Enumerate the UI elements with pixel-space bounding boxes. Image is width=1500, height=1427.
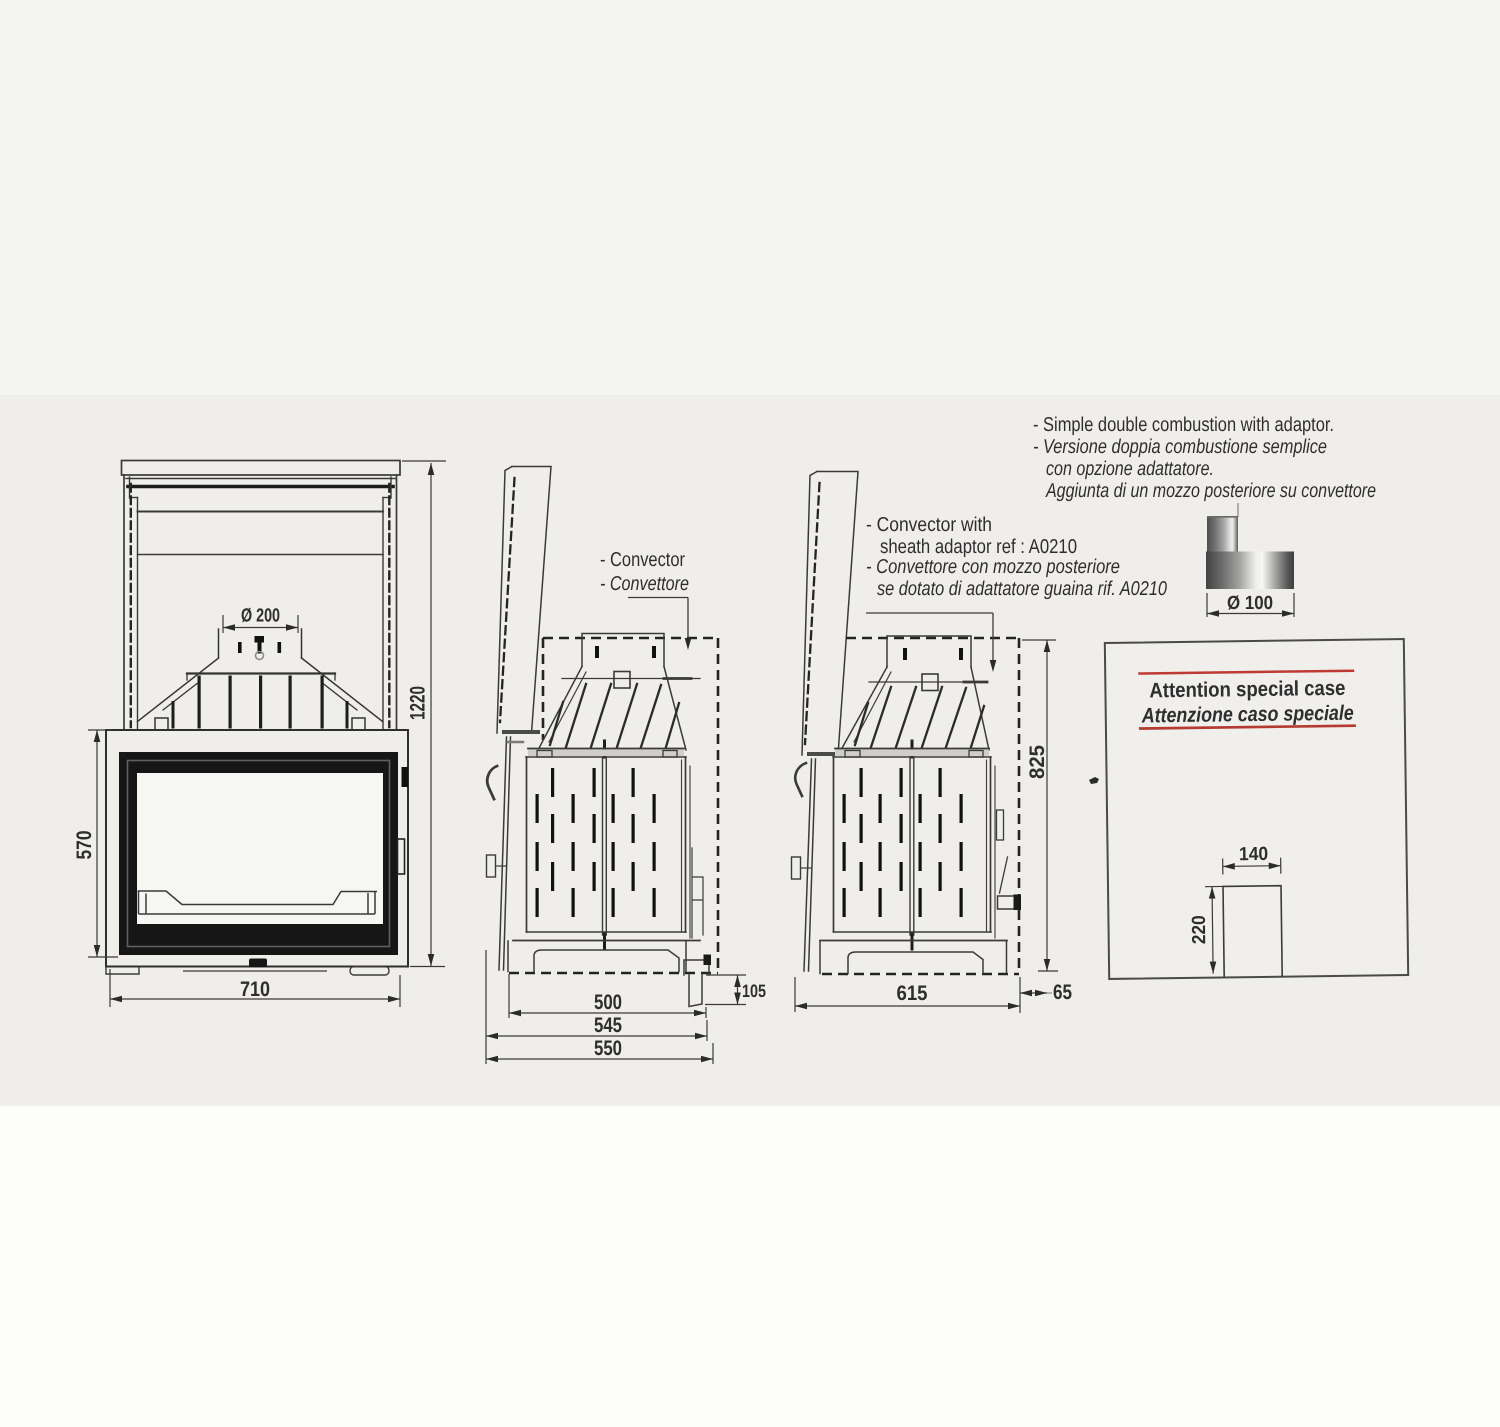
svg-text:550: 550 [594,1037,622,1060]
svg-text:105: 105 [742,981,766,1001]
svg-text:220: 220 [1189,915,1210,944]
svg-text:65: 65 [1053,981,1072,1004]
svg-text:se dotato di adattatore guaina: se dotato di adattatore guaina rif. A021… [877,578,1167,600]
svg-text:500: 500 [594,991,622,1014]
svg-text:- Convettore con mozzo poster: - Convettore con mozzo posteriore [866,556,1120,578]
svg-text:- Versione doppia combustione: - Versione doppia combustione semplice [1033,436,1327,458]
svg-text:Ø 200: Ø 200 [241,606,280,627]
svg-text:- Convector with: - Convector with [866,514,992,536]
svg-text:545: 545 [594,1014,622,1037]
svg-text:615: 615 [897,982,928,1005]
svg-text:140: 140 [1239,844,1268,865]
svg-text:- Convettore: - Convettore [600,573,689,595]
svg-text:Aggiunta di un mozzo posterior: Aggiunta di un mozzo posteriore su conve… [1045,480,1376,502]
svg-text:- Simple double combustion wit: - Simple double combustion with adaptor. [1033,414,1334,436]
svg-text:825: 825 [1026,745,1049,779]
svg-text:570: 570 [73,831,96,860]
svg-text:Ø 100: Ø 100 [1227,593,1273,614]
svg-text:sheath adaptor ref : A0210: sheath adaptor ref : A0210 [880,536,1077,558]
svg-text:- Convector: - Convector [600,549,685,571]
svg-text:Attention special case: Attention special case [1149,677,1345,703]
svg-text:1220: 1220 [407,686,430,720]
svg-text:con opzione adattatore.: con opzione adattatore. [1046,458,1214,480]
svg-text:Attenzione caso speciale: Attenzione caso speciale [1141,702,1354,728]
svg-text:710: 710 [240,978,270,1001]
